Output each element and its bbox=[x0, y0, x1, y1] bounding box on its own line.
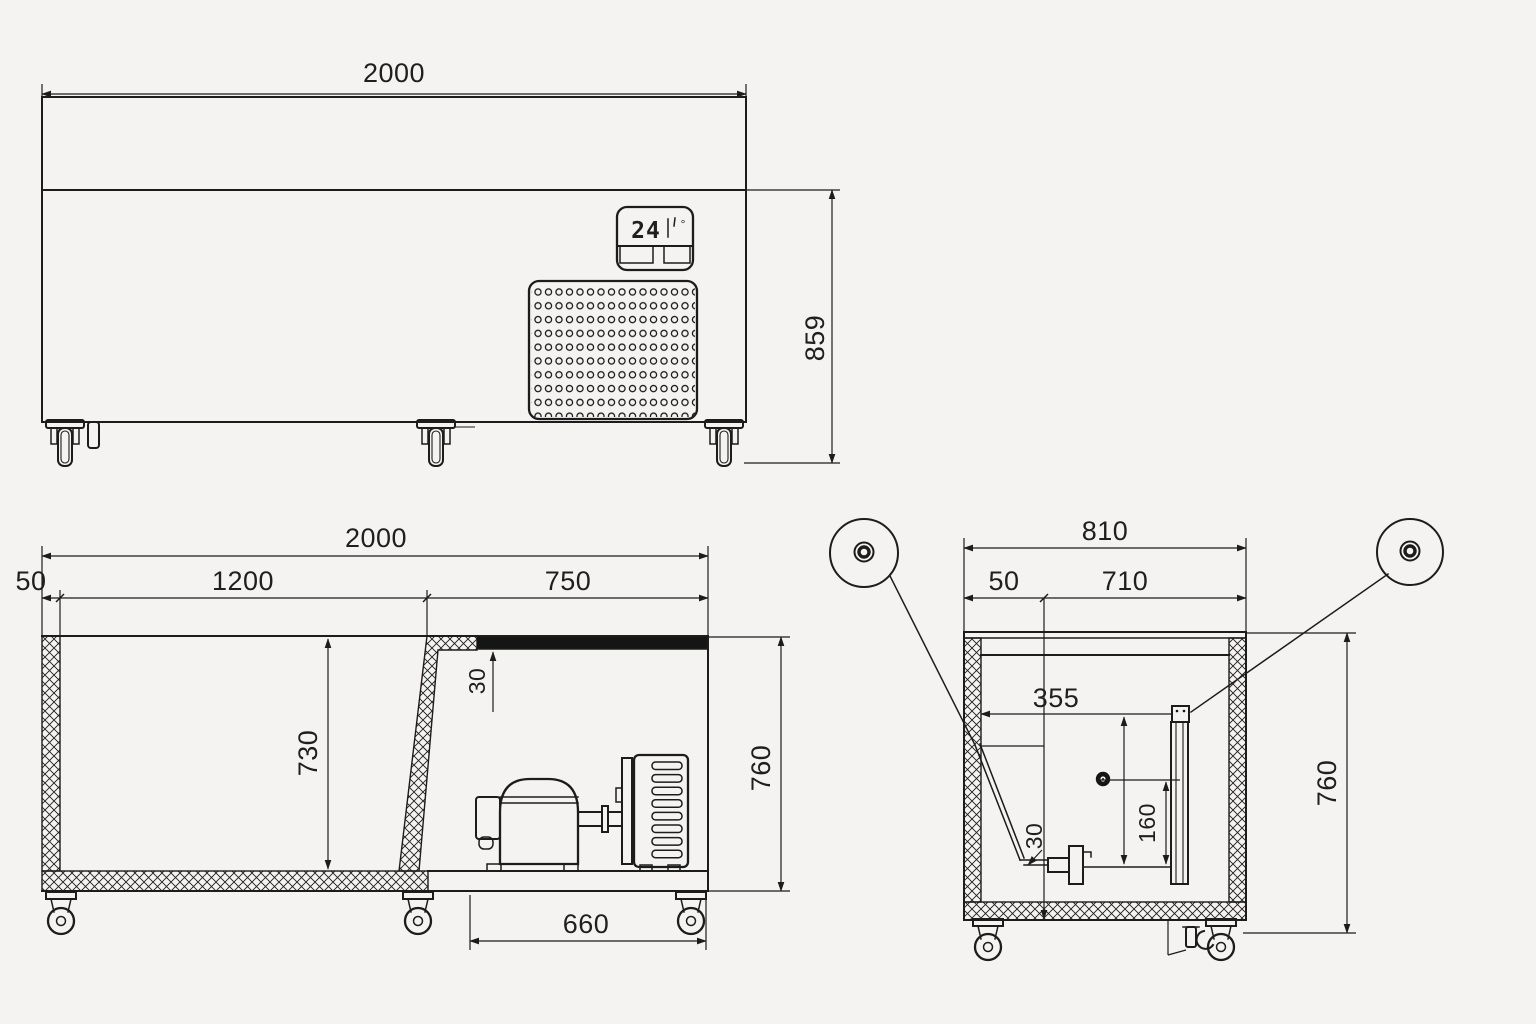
temperature-value: 24 bbox=[631, 218, 661, 244]
end-pipe-label: 30 bbox=[1021, 823, 1047, 850]
standpipe-bracket bbox=[1172, 706, 1189, 722]
end-overall-width-label: 810 bbox=[1082, 516, 1129, 546]
front-height-label: 859 bbox=[800, 315, 830, 362]
end-left-wall-insulation bbox=[964, 638, 981, 902]
side-depth-label: 730 bbox=[293, 730, 323, 777]
side-left-wall-insulation bbox=[42, 636, 60, 871]
side-bay-floor-label: 660 bbox=[563, 909, 610, 939]
end-inner-width-label: 710 bbox=[1102, 566, 1149, 596]
side-overall-width-label: 2000 bbox=[345, 523, 407, 553]
vent-hole-field bbox=[531, 283, 695, 417]
side-bottom-insulation bbox=[42, 871, 428, 891]
side-wall-label: 50 bbox=[15, 566, 46, 596]
side-worktop-label: 30 bbox=[464, 668, 490, 695]
refrigerated-counter-drawing: 2000 24 ° bbox=[0, 0, 1536, 1024]
end-bottom-insulation bbox=[964, 902, 1246, 920]
drain-hole bbox=[1096, 772, 1110, 786]
side-worktop-band bbox=[477, 637, 707, 649]
end-wall-label: 50 bbox=[988, 566, 1019, 596]
end-drain-offset-label: 355 bbox=[1033, 683, 1080, 713]
degree-mark: ° bbox=[681, 217, 686, 231]
compressor-dome bbox=[500, 779, 578, 864]
end-riser-label: 160 bbox=[1134, 803, 1160, 843]
end-right-wall-insulation bbox=[1229, 638, 1246, 902]
front-width-label: 2000 bbox=[363, 58, 425, 88]
ventilation-grille bbox=[529, 281, 697, 419]
side-bay-label: 750 bbox=[545, 566, 592, 596]
side-height-label: 760 bbox=[746, 745, 776, 792]
end-height-label: 760 bbox=[1312, 760, 1342, 807]
technical-drawing-sheet: 2000 24 ° bbox=[0, 0, 1536, 1024]
side-chamber-label: 1200 bbox=[212, 566, 274, 596]
